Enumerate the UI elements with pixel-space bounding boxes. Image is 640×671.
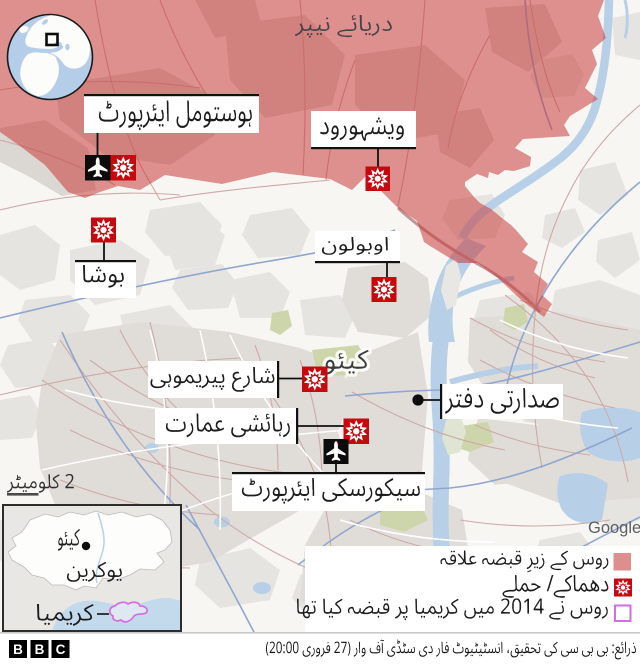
svg-text:B: B <box>35 642 45 657</box>
svg-text:Google: Google <box>588 519 640 537</box>
svg-text:C: C <box>56 642 66 657</box>
svg-text:B: B <box>13 642 23 657</box>
